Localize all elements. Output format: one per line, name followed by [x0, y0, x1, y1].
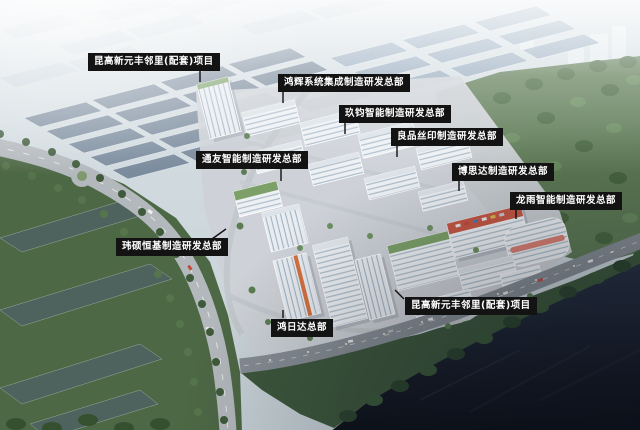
aerial-site-rendering: 昆高新元丰邻里(配套)项目 鸿辉系统集成制造研发总部 玖钧智能制造研发总部 良品… [0, 0, 640, 430]
label-kungaoxin-neighborhood-top: 昆高新元丰邻里(配套)项目 [88, 53, 220, 71]
label-bosida-manufacturing: 博思达制造研发总部 [452, 163, 554, 181]
label-liangpin-screen-printing: 良品丝印制造研发总部 [391, 128, 503, 146]
label-kungaoxin-neighborhood-bottom: 昆高新元丰邻里(配套)项目 [405, 297, 537, 315]
label-hongrida-headquarters: 鸿日达总部 [271, 319, 333, 337]
label-weishuohengji-manufacturing: 玮硕恒基制造研发总部 [116, 238, 228, 256]
label-jiujun-smart-manufacturing: 玖钧智能制造研发总部 [339, 105, 451, 123]
label-tongyou-smart-manufacturing: 通友智能制造研发总部 [196, 151, 308, 169]
label-honghui-system-integration: 鸿辉系统集成制造研发总部 [278, 74, 410, 92]
label-longyu-smart-manufacturing: 龙雨智能制造研发总部 [510, 192, 622, 210]
